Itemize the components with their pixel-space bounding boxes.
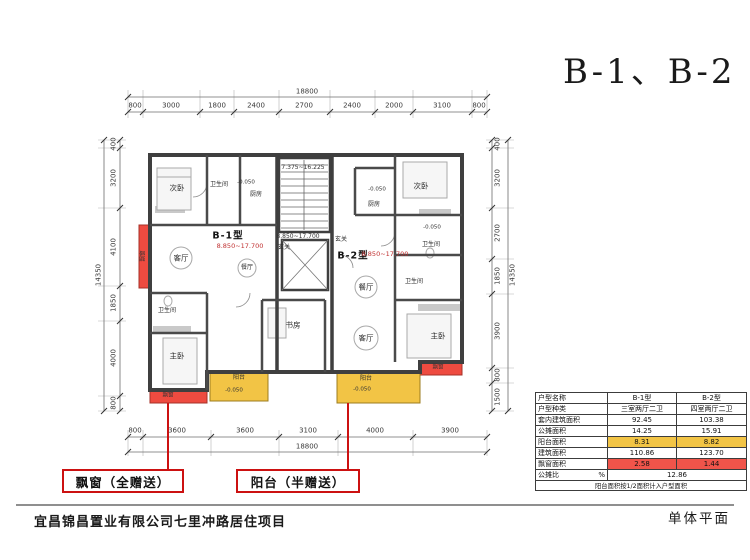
room-b1-bathroom-lower: 卫生间 — [158, 308, 176, 314]
dim-right-3: 1850 — [495, 267, 502, 285]
dim-top-1: 3000 — [162, 103, 180, 110]
dim-top-5: 2400 — [343, 103, 361, 110]
room-study: 书房 — [286, 321, 301, 329]
balcony-b2-highlight — [337, 372, 420, 403]
unit-b1-label: B-1型 — [212, 231, 243, 241]
dim-right-0: 400 — [495, 137, 502, 150]
unit-b2-levels: 8.850~17.700 — [362, 251, 409, 258]
bay-window-left-label: 飘窗 — [141, 250, 147, 261]
callout-leader-lines — [168, 403, 348, 469]
callout-bay-window: 飘窗（全赠送） — [62, 469, 184, 493]
dim-left-1: 3200 — [111, 169, 118, 187]
dim-top-6: 2000 — [385, 103, 403, 110]
ratio-value: 12.86 — [608, 470, 747, 481]
dim-bottom-3: 3100 — [299, 428, 317, 435]
dim-left-2: 4100 — [111, 238, 118, 256]
room-b1-bedroom2: 次卧 — [170, 184, 185, 192]
row-b1-value-highlighted: 8.31 — [608, 437, 677, 448]
row-label: 阳台面积 — [536, 437, 608, 448]
dim-right-4: 3900 — [495, 322, 502, 340]
row-label: 建筑面积 — [536, 448, 608, 459]
row-b2-value: 15.91 — [677, 426, 747, 437]
dim-top-4: 2700 — [295, 103, 313, 110]
party-walls — [277, 155, 332, 372]
table-row: 套内建筑面积 92.45 103.38 — [536, 415, 747, 426]
dimension-lines — [104, 97, 508, 452]
room-b2-dining: 餐厅 — [359, 283, 374, 291]
table-note: 阳台面积按1/2面积计入户型面积 — [536, 481, 747, 491]
row-b1-value: 92.45 — [608, 415, 677, 426]
room-b1-master: 主卧 — [170, 352, 185, 360]
table-header-b2: B-2型 — [677, 393, 747, 404]
row-label: 飘窗面积 — [536, 459, 608, 470]
dim-bottom-total: 18800 — [296, 444, 318, 451]
furniture — [157, 162, 451, 384]
level-mark-b2-balcony: -0.050 — [353, 387, 371, 393]
row-b2-value-highlighted: 1.44 — [677, 459, 747, 470]
row-b1-value: 110.86 — [608, 448, 677, 459]
bay-window-bl-label: 飘窗 — [162, 393, 173, 399]
table-row: 建筑面积 110.86 123.70 — [536, 448, 747, 459]
table-note-row: 阳台面积按1/2面积计入户型面积 — [536, 481, 747, 491]
dim-top-3: 2400 — [247, 103, 265, 110]
dim-bottom-4: 4000 — [366, 428, 384, 435]
room-b1-kitchen: 厨房 — [250, 192, 262, 198]
table-row-bay-window-area: 飘窗面积 2.58 1.44 — [536, 459, 747, 470]
row-b1-value: 三室两厅二卫 — [608, 404, 677, 415]
project-name: 宜昌锦昌置业有限公司七里冲路居住项目 — [34, 511, 286, 530]
area-table: 户型名称 B-1型 B-2型 户型种类 三室两厅二卫 四室两厅二卫 套内建筑面积… — [535, 392, 747, 491]
table-row: 公摊面积 14.25 15.91 — [536, 426, 747, 437]
level-mark-b1-balcony: -0.050 — [225, 388, 243, 394]
room-b2-master: 主卧 — [431, 332, 446, 340]
ratio-unit: % — [598, 471, 605, 479]
room-b2-balcony: 阳台 — [360, 376, 372, 382]
row-label: 户型种类 — [536, 404, 608, 415]
room-b2-kitchen: 厨房 — [368, 202, 380, 208]
bay-window-br-label: 飘窗 — [432, 365, 443, 371]
table-row: 户型种类 三室两厅二卫 四室两厅二卫 — [536, 404, 747, 415]
room-b2-living: 客厅 — [359, 334, 374, 342]
dim-left-0: 400 — [111, 137, 118, 150]
interior-walls — [150, 155, 462, 390]
room-b1-entry: 玄关 — [278, 245, 290, 251]
footer-divider — [16, 504, 734, 506]
outer-walls — [150, 155, 462, 390]
table-row-ratio: 公摊比 % 12.86 — [536, 470, 747, 481]
room-b1-living: 客厅 — [174, 254, 189, 262]
callout-bay-window-label: 飘窗（全赠送） — [76, 472, 171, 491]
sheet-name: 单体平面 — [668, 507, 730, 527]
dim-left-3: 1850 — [111, 294, 118, 312]
dim-top-2: 1800 — [208, 103, 226, 110]
table-header-row: 户型名称 B-1型 B-2型 — [536, 393, 747, 404]
room-b2-bathroom-2: 卫生间 — [405, 279, 423, 285]
room-b2-bathroom: 卫生间 — [422, 242, 440, 248]
extension-lines — [98, 90, 514, 456]
dim-right-5: 800 — [495, 368, 502, 381]
row-b1-value: 14.25 — [608, 426, 677, 437]
dim-right-2: 2700 — [495, 224, 502, 242]
callout-balcony: 阳台（半赠送） — [236, 469, 360, 493]
ratio-label: 公摊比 — [538, 470, 559, 480]
row-b2-value-highlighted: 8.82 — [677, 437, 747, 448]
corridor-levels: 8.850~17.700 — [276, 234, 319, 240]
sheet-title: B-1、B-2 — [563, 44, 735, 93]
room-b2-bedroom2: 次卧 — [414, 182, 429, 190]
bay-window-bottom-left-highlight — [150, 390, 207, 403]
table-header-b1: B-1型 — [608, 393, 677, 404]
dim-top-total: 18800 — [296, 89, 318, 96]
dim-top-0: 800 — [128, 103, 141, 110]
callout-balcony-label: 阳台（半赠送） — [251, 472, 346, 491]
room-b1-bathroom-upper: 卫生间 — [210, 182, 228, 188]
level-mark-b2-kitchen: -0.050 — [368, 187, 386, 193]
dim-right-6: 1500 — [495, 388, 502, 406]
dim-top-7: 3100 — [433, 103, 451, 110]
stair-levels: 7.375~16.225 — [281, 165, 324, 171]
row-b2-value: 123.70 — [677, 448, 747, 459]
level-mark-b1-upper: -0.050 — [237, 180, 255, 186]
dim-left-5: 800 — [111, 396, 118, 409]
dim-bottom-2: 3600 — [236, 428, 254, 435]
unit-b1-levels: 8.850~17.700 — [217, 243, 264, 250]
level-mark-b2-bath: -0.050 — [423, 225, 441, 231]
row-label: 公摊面积 — [536, 426, 608, 437]
drawing-sheet: 18800 800 3000 1800 2400 2700 2400 2000 … — [0, 0, 750, 560]
row-b1-value-highlighted: 2.58 — [608, 459, 677, 470]
room-b1-dining: 餐厅 — [241, 265, 253, 271]
table-header-name: 户型名称 — [536, 393, 608, 404]
dim-left-total: 14350 — [96, 264, 103, 286]
room-b2-entry: 玄关 — [335, 237, 347, 243]
table-row-balcony-area: 阳台面积 8.31 8.82 — [536, 437, 747, 448]
wardrobe-strips — [153, 206, 460, 332]
dim-bottom-5: 3900 — [441, 428, 459, 435]
dim-bottom-0: 800 — [128, 428, 141, 435]
dim-right-1: 3200 — [495, 169, 502, 187]
row-label: 套内建筑面积 — [536, 415, 608, 426]
row-b2-value: 四室两厅二卫 — [677, 404, 747, 415]
dim-left-4: 4000 — [111, 349, 118, 367]
row-b2-value: 103.38 — [677, 415, 747, 426]
dim-right-total: 14350 — [510, 264, 517, 286]
dim-top-8: 800 — [472, 103, 485, 110]
room-b1-balcony: 阳台 — [233, 375, 245, 381]
dim-bottom-1: 3600 — [168, 428, 186, 435]
dimension-ticks — [101, 94, 511, 455]
